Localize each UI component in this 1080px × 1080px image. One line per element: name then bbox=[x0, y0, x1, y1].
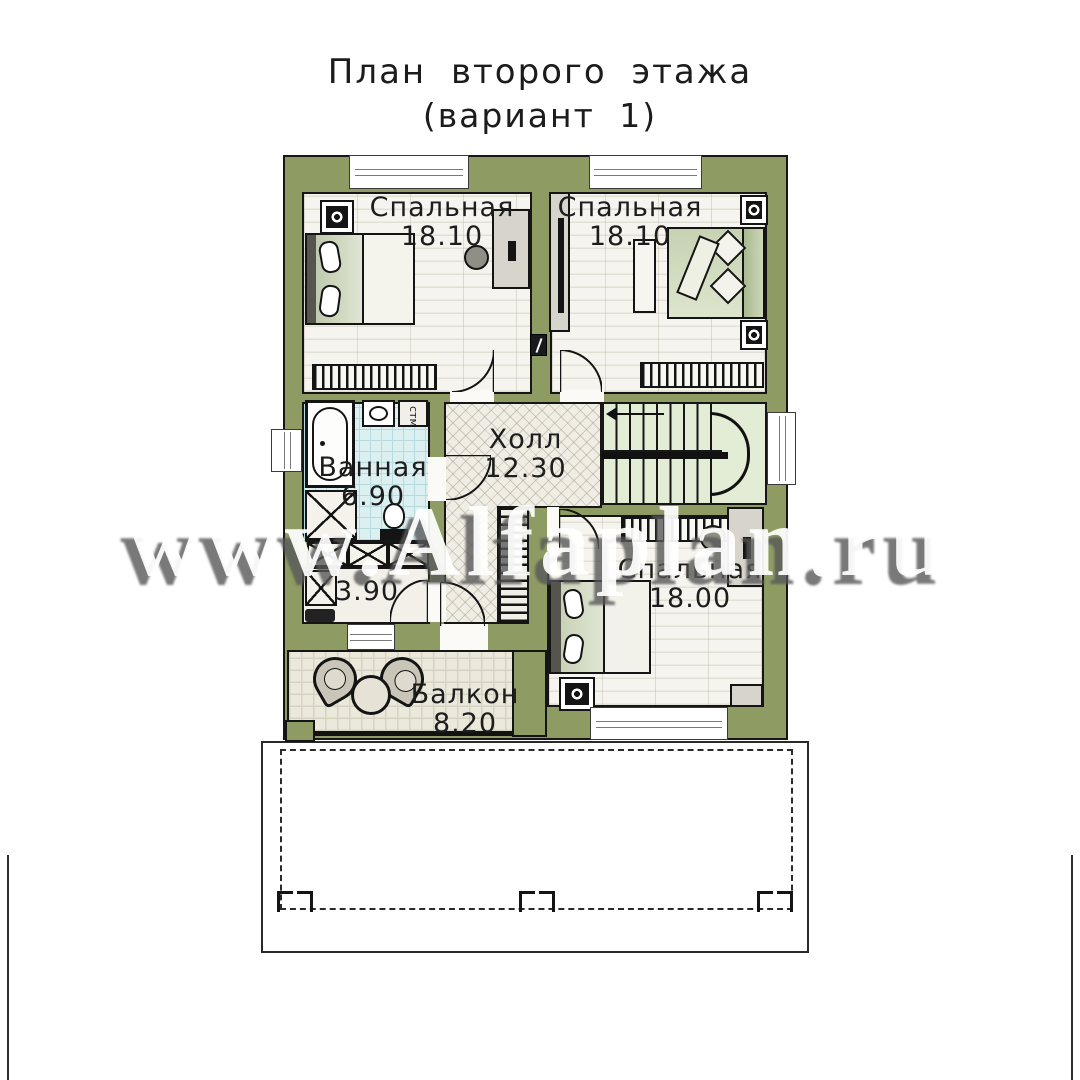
chair-seat bbox=[320, 664, 350, 694]
balcony-corner-pier bbox=[285, 720, 315, 742]
floor-plan: стм Спальная 18.10 Спальная 18.10 bbox=[283, 155, 788, 740]
washing-machine: стм bbox=[398, 400, 428, 427]
stair-flight-upper bbox=[602, 402, 722, 452]
bathtub-drain bbox=[320, 441, 325, 446]
stair-direction-line bbox=[616, 413, 664, 415]
room-area: 12.30 bbox=[463, 454, 588, 483]
room-label-hall: Холл 12.30 bbox=[463, 425, 588, 483]
radiator bbox=[640, 362, 764, 388]
bed-headboard bbox=[307, 235, 316, 323]
balcony-table bbox=[351, 675, 391, 715]
room-label-balcony: Балкон 8.20 bbox=[390, 680, 540, 738]
room-name: Балкон bbox=[390, 680, 540, 709]
pillow bbox=[317, 240, 342, 275]
bed-headboard bbox=[742, 229, 763, 317]
pillow bbox=[562, 633, 585, 666]
window-above-balcony bbox=[347, 624, 395, 650]
room-label-bedroom-tl: Спальная 18.10 bbox=[352, 193, 532, 251]
pillow bbox=[710, 268, 747, 305]
page-subtitle: (вариант 1) bbox=[0, 96, 1080, 135]
window-top-left bbox=[349, 155, 469, 189]
roof-outline bbox=[261, 741, 809, 953]
room-label-bedroom-tr: Спальная 18.10 bbox=[555, 193, 705, 251]
sink bbox=[362, 400, 395, 427]
watermark: www.Alfaplan.ru bbox=[128, 484, 951, 599]
speaker-icon bbox=[320, 200, 354, 234]
column-mark bbox=[277, 891, 313, 911]
room-area: 8.20 bbox=[390, 709, 540, 738]
window-bathroom bbox=[271, 429, 302, 472]
vent-mark bbox=[535, 338, 542, 353]
stair-direction-arrow bbox=[606, 407, 617, 421]
washing-machine-label: стм bbox=[407, 406, 420, 427]
window-top-right bbox=[589, 155, 702, 189]
side-table bbox=[730, 684, 763, 707]
page-title: План второго этажа bbox=[0, 52, 1080, 92]
room-name: Спальная bbox=[555, 193, 705, 222]
sink-bowl bbox=[369, 406, 388, 421]
pillow bbox=[318, 284, 342, 318]
door-arc-bedroom-tl bbox=[452, 350, 494, 392]
radiator bbox=[312, 364, 437, 390]
window-bedroom-bottom bbox=[590, 707, 728, 740]
window-stairs bbox=[767, 412, 796, 485]
sheet-edge-right bbox=[1071, 855, 1073, 1080]
room-area: 18.10 bbox=[555, 222, 705, 251]
speaker-icon bbox=[740, 195, 768, 225]
room-name: Холл bbox=[463, 425, 588, 454]
speaker-icon bbox=[559, 677, 595, 711]
room-name: Ванная bbox=[315, 453, 431, 482]
vent-shaft bbox=[530, 334, 547, 356]
room-area: 18.10 bbox=[352, 222, 532, 251]
roof-dashed-outline bbox=[280, 749, 793, 910]
door-arc-bedroom-tr bbox=[560, 350, 602, 392]
speaker-icon bbox=[740, 320, 768, 350]
appliance bbox=[305, 609, 335, 622]
sheet-edge-left bbox=[7, 855, 9, 1080]
column-mark bbox=[519, 891, 555, 911]
column-mark bbox=[757, 891, 793, 911]
door-opening-balcony bbox=[440, 624, 488, 650]
room-name: Спальная bbox=[352, 193, 532, 222]
